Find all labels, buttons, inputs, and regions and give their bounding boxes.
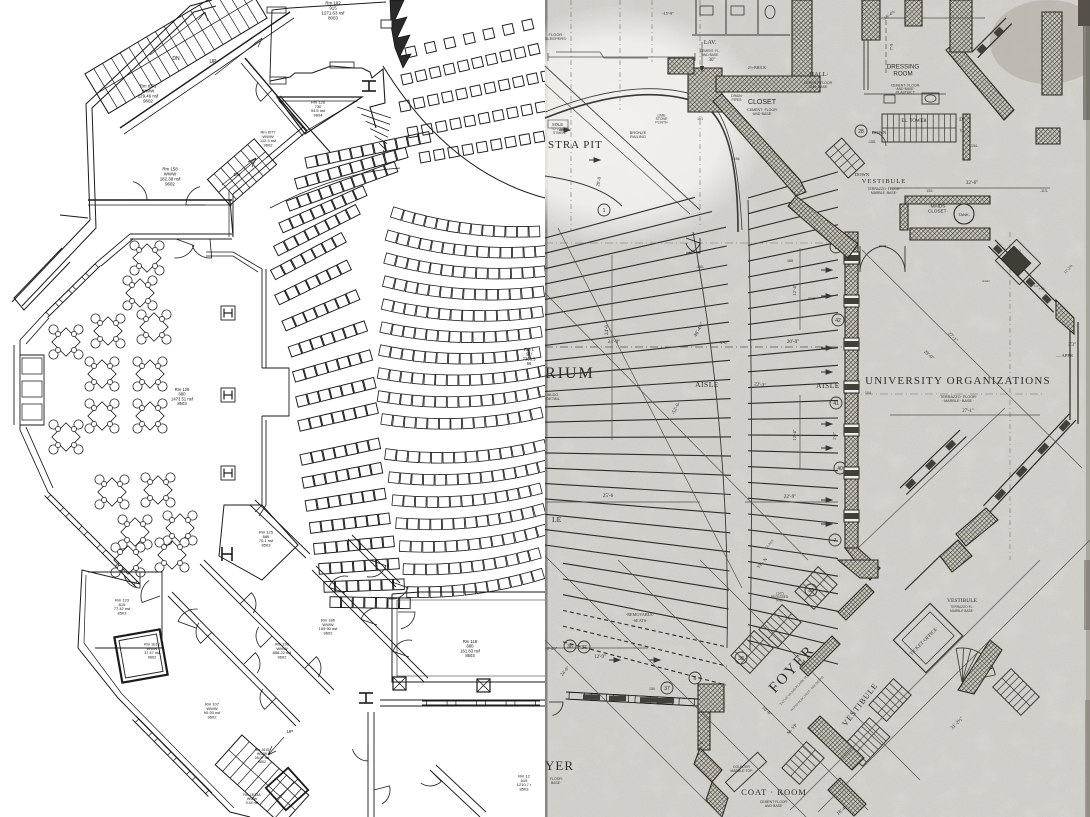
svg-text:· MARBLE· BASE ·: · MARBLE· BASE · [942,399,975,403]
svg-text:STRA PIT: STRA PIT [548,139,603,151]
svg-text:8503: 8503 [118,611,128,616]
svg-text:LAV.: LAV. [704,40,717,46]
svg-text:-15'-9": -15'-9" [662,11,674,16]
svg-text:101: 101 [697,117,703,121]
svg-text:RAD·: RAD· [776,599,784,603]
svg-text:AISLE: AISLE [695,380,719,389]
svg-text:RAILING: RAILING [630,134,646,139]
svg-text:8503: 8503 [465,653,475,658]
svg-text:112: 112 [1034,284,1039,288]
svg-text:36: 36 [567,644,573,650]
svg-text:COAT · ROOM: COAT · ROOM [741,787,807,797]
svg-text:24'-0: 24'-0 [605,324,610,335]
svg-text:·AND· BASE·: ·AND· BASE· [808,85,829,89]
svg-text:9604: 9604 [314,113,324,118]
svg-text:PIPES·: PIPES· [731,98,742,102]
svg-text:·2½·BRICK·: ·2½·BRICK· [746,65,767,70]
svg-text:9602: 9602 [148,655,156,659]
svg-text:-113-: -113- [1040,189,1049,193]
svg-text:-150-: -150- [696,265,705,269]
svg-text:+5°-: +5°- [1039,287,1047,291]
svg-text:VESTIBULE: VESTIBULE [947,598,978,604]
svg-text:9602: 9602 [165,181,175,186]
svg-text:8503: 8503 [262,543,272,548]
svg-text:MARBLE ·BASE·: MARBLE ·BASE· [871,191,897,195]
svg-text:LE: LE [552,515,562,524]
svg-text:12'-9": 12'-9" [594,655,606,660]
svg-text:3'-0": 3'-0" [720,340,729,345]
svg-text:12'-4": 12'-4" [792,429,797,440]
svg-text:AND·BASE·: AND·BASE· [765,804,783,808]
svg-text:AISLE: AISLE [816,381,840,390]
svg-text:104: 104 [865,391,871,395]
svg-text:DETAIL: DETAIL [546,396,560,401]
svg-text:22'-9": 22'-9" [784,494,797,500]
svg-text:6: 6 [694,676,697,682]
svg-text:8503: 8503 [520,787,530,792]
svg-text:VESTIBULE: VESTIBULE [862,178,906,185]
svg-text:24'-0": 24'-0" [608,339,621,345]
svg-text:1: 1 [603,208,606,214]
svg-text:138: 138 [697,741,703,745]
svg-text:EL. TOWER: EL. TOWER [901,119,927,124]
svg-text:ROOM: ROOM [893,70,912,77]
svg-text:37: 37 [664,686,670,692]
svg-text:32'-6": 32'-6" [966,180,979,186]
svg-text:PLINTH·: PLINTH· [655,121,668,125]
svg-text:SLEEPERS·: SLEEPERS· [545,36,567,41]
svg-text:CLOSET: CLOSET [748,99,777,106]
svg-text:181: 181 [845,264,851,268]
svg-text:YER: YER [545,758,574,773]
svg-text:3'3": 3'3" [1068,343,1076,348]
svg-text:RAD: RAD [982,279,990,283]
svg-text:-10: -10 [1015,249,1020,253]
svg-text:12'-4": 12'-4" [792,284,797,295]
svg-text:20'-0": 20'-0" [787,339,800,345]
svg-text:MARBLE·BASE·: MARBLE·BASE· [950,609,974,613]
svg-text:66: 66 [527,361,532,366]
svg-text:7'-9: 7'-9 [889,43,894,50]
svg-text:-156: -156 [732,157,739,161]
svg-text:1'-6": 1'-6" [832,432,837,440]
svg-text:-REMOVABLE-: -REMOVABLE- [626,612,655,617]
svg-text:9602: 9602 [258,760,266,764]
svg-text:27'-1": 27'-1" [962,409,974,414]
svg-text:9602: 9602 [143,98,153,103]
svg-text:9.44 nsf: 9.44 nsf [246,801,259,805]
svg-text:28: 28 [858,129,864,135]
svg-text:40: 40 [837,466,843,472]
svg-text:8503: 8503 [177,401,187,406]
svg-text:7: 7 [834,538,837,544]
svg-text:37: 37 [581,645,587,651]
svg-text:-155-: -155- [868,140,877,144]
svg-text:188: 188 [787,259,793,263]
svg-text:RIUM: RIUM [545,365,595,382]
svg-text:30": 30" [708,58,715,63]
svg-text:25'-6: 25'-6 [603,493,614,499]
svg-text:MARBLE·TOP·: MARBLE·TOP· [730,769,753,773]
svg-text:TANK.: TANK. [958,212,969,217]
svg-text:UNIVERSITY ORGANIZATIONS: UNIVERSITY ORGANIZATIONS [865,375,1051,387]
svg-text:9602: 9602 [264,143,274,148]
svg-text:— APPR: — APPR [1055,353,1074,358]
svg-text:-154-: -154- [970,144,979,148]
svg-text:41: 41 [833,401,839,407]
svg-text:150: 150 [649,687,655,691]
svg-text:RAD: RAD [808,297,816,301]
svg-text:CLOSET·: CLOSET· [928,209,948,214]
svg-text:·HALL·: ·HALL· [807,71,829,78]
svg-text:9602: 9602 [208,715,218,720]
svg-text:·AND·BASE·: ·AND·BASE· [752,112,773,116]
svg-text:UP: UP [287,729,294,735]
svg-text:9602: 9602 [324,631,334,636]
svg-text:BASE·: BASE· [551,781,561,785]
svg-text:8003: 8003 [328,15,338,20]
svg-text:-SEATS-: -SEATS- [632,618,648,623]
svg-text:152-: 152- [926,189,934,193]
svg-text:9602: 9602 [278,655,288,660]
svg-text:AND·BASE: AND·BASE [702,53,718,57]
svg-text:DOWN: DOWN [855,172,870,177]
svg-text:DN: DN [172,56,180,62]
svg-text:42: 42 [835,318,841,324]
